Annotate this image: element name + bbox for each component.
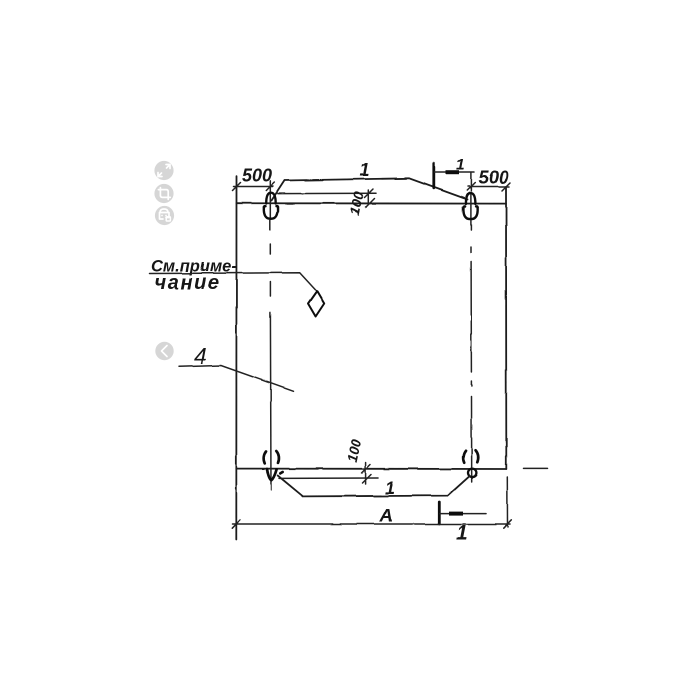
svg-text:1: 1 [456, 157, 465, 174]
svg-text:1: 1 [385, 478, 395, 498]
svg-text:500: 500 [479, 168, 509, 188]
svg-text:1: 1 [360, 160, 370, 180]
svg-text:4: 4 [194, 343, 207, 369]
svg-text:чание: чание [155, 272, 221, 294]
svg-text:500: 500 [242, 165, 272, 185]
svg-text:1: 1 [456, 522, 468, 545]
svg-text:А: А [379, 505, 393, 526]
